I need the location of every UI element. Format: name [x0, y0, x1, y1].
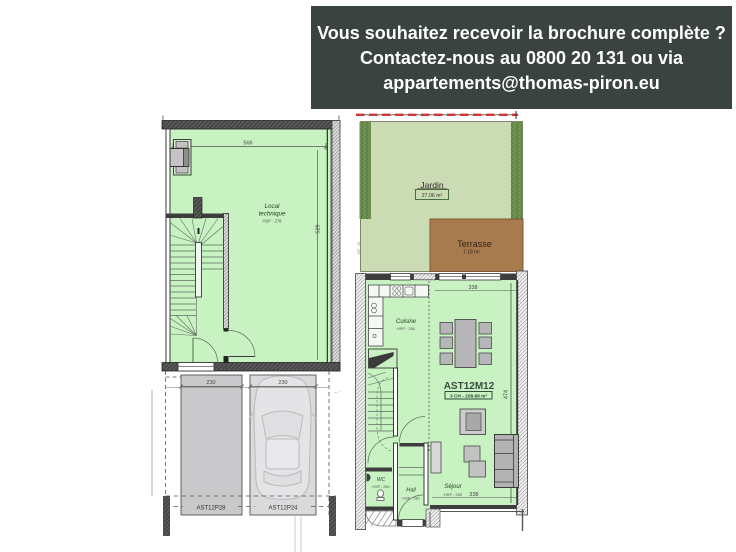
svg-text:HSP : 280: HSP : 280 — [372, 485, 389, 489]
svg-text:Local: Local — [265, 203, 280, 210]
svg-text:HSP : 278: HSP : 278 — [262, 219, 282, 224]
svg-text:HSP : 280: HSP : 280 — [444, 492, 463, 497]
svg-text:Terrasse: Terrasse — [457, 239, 492, 249]
svg-text:Hall: Hall — [406, 488, 416, 494]
svg-text:230: 230 — [206, 380, 215, 386]
svg-text:Séjour: Séjour — [444, 484, 462, 490]
svg-text:3 CH - 208.88 m²: 3 CH - 208.88 m² — [450, 393, 487, 399]
svg-text:technique: technique — [259, 211, 286, 218]
svg-text:— ··: — ·· — [334, 390, 341, 394]
svg-text:AST12M12: AST12M12 — [444, 381, 495, 392]
svg-text:27.06 m²: 27.06 m² — [422, 193, 443, 199]
svg-text:338: 338 — [469, 492, 478, 498]
svg-text:AST12P28: AST12P28 — [196, 506, 226, 512]
svg-text:474: 474 — [504, 390, 510, 399]
svg-text:267 . 30: 267 . 30 — [357, 242, 361, 255]
svg-text:WC: WC — [377, 477, 386, 483]
svg-text:529: 529 — [316, 224, 322, 233]
svg-text:566: 566 — [243, 141, 252, 147]
svg-text:338: 338 — [468, 285, 477, 291]
svg-text:230: 230 — [278, 380, 287, 386]
svg-text:HSP : 280: HSP : 280 — [397, 326, 416, 331]
svg-text:7.18 m²: 7.18 m² — [463, 250, 480, 256]
svg-text:Cuisine: Cuisine — [396, 319, 417, 325]
svg-text:AST12P24: AST12P24 — [268, 506, 298, 512]
